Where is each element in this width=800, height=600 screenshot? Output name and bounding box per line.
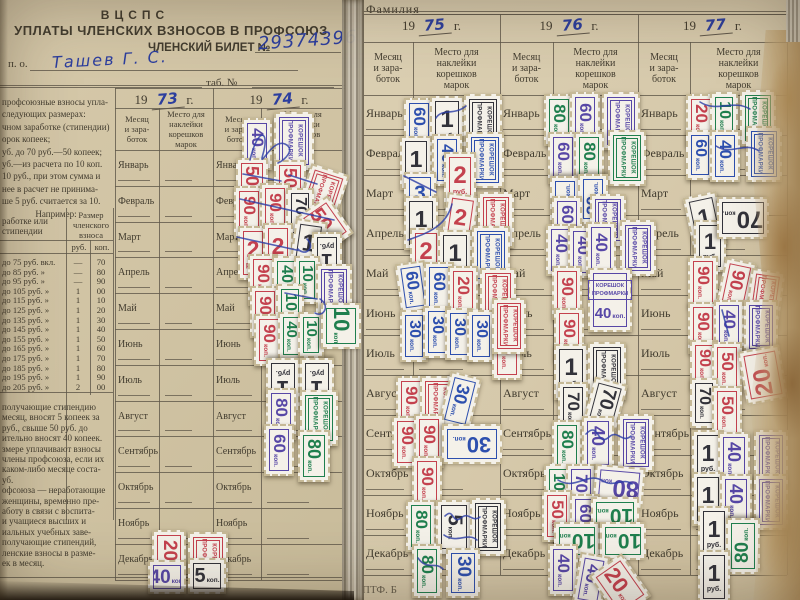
earnings-underline [503, 129, 544, 130]
stub-frame: КОРЕШОК ПРОФМАРКИ [613, 135, 641, 181]
earnings-underline [216, 323, 252, 324]
rate-row-kop: 20 [91, 305, 111, 315]
stamp-amount: 30 [473, 320, 489, 338]
stamp-amount: 80 [581, 142, 598, 161]
stamp-value: 10коп. [304, 320, 319, 351]
rate-row-kop: 40 [91, 324, 111, 334]
month-label: Ноябрь [641, 506, 679, 521]
info-line: уб.—из расчета по 10 коп. [2, 158, 120, 170]
stamp-unit: руб. [310, 370, 324, 377]
stamp-value: 90коп. [421, 425, 438, 458]
rate-row-label: до 165 руб. » [2, 343, 49, 353]
rate-row-kop: 50 [91, 334, 111, 344]
stamp-amount: 10 [330, 308, 352, 331]
stamp-amount: 40 [593, 233, 610, 252]
notes-line: ленские взносы в разме- [2, 548, 95, 558]
stamp-frame: 80коп. [579, 137, 599, 179]
stamp-amount: 30 [451, 382, 473, 406]
rate-row-rub: 1 [68, 324, 88, 334]
stamp-value: 40коп. [721, 310, 738, 343]
rate-row-kop: 80 [91, 363, 111, 373]
stub-text: КОРЕШОК ПРОФМАРКИ [478, 506, 497, 548]
stamp-value: 90коп. [559, 277, 576, 310]
stamp-unit: коп. [455, 578, 462, 591]
place-underline [165, 395, 192, 396]
month-label: Январь [366, 106, 403, 121]
stamp-amount: 10 [716, 101, 732, 119]
membership-card-photo: ВЦСПС УПЛАТЫ ЧЛЕНСКИХ ВЗНОСОВ В ПРОФСОЮЗ… [0, 0, 800, 600]
dues-stamp: 40коп. [582, 416, 614, 470]
stamp-value: 20коп. [455, 276, 472, 309]
month-label: Март [366, 186, 393, 201]
stamp-amount: 50 [719, 396, 736, 415]
month-label: Январь [118, 160, 149, 171]
stamp-unit: коп. [304, 337, 311, 350]
year-suffix: г. [735, 18, 742, 33]
stamp-frame: 30коп. [450, 313, 468, 355]
stamp-frame: 30коп. [451, 553, 475, 593]
stamp-unit: коп. [172, 579, 181, 586]
stub-text: КОРЕШОК ПРОФМАРКИ [475, 139, 494, 181]
stamp-frame: 40коп. [591, 227, 611, 271]
earnings-underline [118, 538, 150, 539]
year-column-line [115, 88, 116, 580]
stamp-unit: коп. [419, 575, 426, 588]
stamp-value: 30коп. [429, 316, 445, 348]
stamp-amount: 70 [595, 386, 619, 411]
rate-row-rub: 1 [68, 295, 88, 305]
rate-row-label: до 85 руб. » [2, 267, 45, 277]
month-label: Октябрь [118, 482, 153, 493]
stamp-value: 1руб. [707, 518, 721, 549]
stamp-amount: 40 [725, 442, 743, 462]
rate-row-label: до 155 руб. » [2, 334, 49, 344]
month-label: Июнь [118, 339, 143, 350]
notes-line: каком-либо месяце соста- [2, 464, 101, 474]
month-label: Февраль [641, 146, 684, 161]
stamp-value: 80коп. [419, 555, 436, 588]
stamp-unit: коп. [271, 454, 278, 467]
month-label: Май [118, 303, 137, 314]
stamp-frame: 30коп. [405, 315, 423, 357]
stamp-frame: 30коп. [428, 311, 446, 353]
stamp-unit: коп. [723, 209, 736, 216]
year-prefix: 19 [540, 18, 553, 33]
earnings-underline [216, 430, 252, 431]
rate-row-kop: 70 [91, 353, 111, 363]
left-edge-shadow [0, 0, 8, 600]
month-label: Июнь [216, 339, 241, 350]
rate-row-label: до 125 руб. » [2, 305, 49, 315]
stamp-amount: 5 [444, 515, 464, 526]
rate-row-rub: 1 [68, 363, 88, 373]
stamp-amount: 20 [693, 104, 710, 123]
rate-row-label: до 135 руб. » [2, 315, 49, 325]
stamp-value: 40коп. [249, 128, 266, 161]
year-prefix: 19 [135, 92, 148, 107]
rate-row-label: до 205 руб. » [2, 382, 49, 392]
month-label: Октябрь [216, 482, 251, 493]
dues-stamp: 60коп. [264, 424, 294, 476]
notes-line: месяц, вносят 5 копеек за [2, 412, 100, 422]
month-label: Февраль [503, 146, 546, 161]
rate-bottom-rule [0, 392, 113, 393]
month-label: Январь [503, 106, 540, 121]
stamp-amount: 1 [440, 108, 453, 132]
month-label: Апрель [118, 267, 150, 278]
rate-row-label: до 115 руб. » [2, 295, 49, 305]
stamp-amount: 30 [429, 316, 445, 334]
stub-text: КОРЕШОК ПРОФМАРКИ [588, 280, 632, 301]
stamp-amount: 40 [595, 306, 612, 321]
stamp-value: 80коп. [581, 142, 598, 175]
stamp-amount: 20 [455, 276, 472, 295]
rate-row-label: до 145 руб. » [2, 324, 49, 334]
stamp-value: 30коп. [453, 433, 491, 455]
stub-text: КОРЕШОК ПРОФМАРКИ [617, 137, 636, 179]
notes-line: получающие стипендий, [2, 537, 96, 547]
stamp-unit: коп. [555, 162, 562, 175]
rate-row-label: до 75 руб. вкл. [2, 257, 55, 267]
stamp-value: 90коп. [267, 193, 284, 226]
stamp-amount: 80 [273, 398, 290, 417]
stamp-amount: 30 [451, 318, 467, 336]
month-col-header: Месяц и зара- боток [638, 42, 690, 95]
stamp-amount: 80 [559, 430, 576, 449]
stamp-frame: 40коп. [719, 305, 739, 347]
notes-line: женщины, временно пре- [2, 496, 99, 506]
stamp-unit: коп. [553, 254, 560, 267]
notes-line: офсоюза — неработающие [2, 485, 105, 495]
stamp-frame: 5коп. [193, 563, 221, 589]
place-underline [267, 538, 309, 539]
place-underline [267, 502, 309, 503]
rate-row-rub: — [68, 257, 88, 267]
place-underline [165, 359, 192, 360]
org-title: ВЦСПС [0, 8, 270, 22]
stamp-value: 60коп. [411, 107, 428, 140]
earnings-underline [118, 359, 150, 360]
month-label: Февраль [118, 196, 154, 207]
stamp-amount: 90 [695, 312, 712, 331]
stamp-unit: коп. [399, 446, 406, 459]
month-label: Октябрь [366, 466, 409, 481]
stamp-value: 40коп. [717, 140, 734, 173]
table-top [115, 88, 345, 89]
stamp-unit: коп. [431, 335, 438, 348]
stamp-amount: 60 [559, 205, 576, 224]
info-line: чном заработке (стипендии) [2, 121, 120, 133]
month-label: Март [641, 186, 668, 201]
stub-text: КОРЕШОК ПРОФМАРКИ [628, 227, 647, 269]
stamp-value: 5коп. [195, 566, 220, 586]
month-col-header: Месяц и зара- боток [363, 42, 413, 95]
notes-line: ительно вносят 40 копеек. [2, 433, 102, 443]
month-label: Март [118, 232, 141, 243]
rate-row-rub: 1 [68, 315, 88, 325]
stamp-amount: 1 [704, 231, 716, 253]
stamp-unit: коп. [453, 337, 460, 350]
info-line: профсоюзные взносы упла- [2, 96, 120, 108]
stamp-unit: коп. [207, 578, 220, 585]
stamp-value: 40коп. [593, 233, 610, 266]
rate-row-kop: 30 [91, 315, 111, 325]
stamp-value: 80коп. [413, 510, 430, 543]
dues-stamp: КОРЕШОК ПРОФМАРКИ [492, 298, 526, 354]
stamp-unit: коп. [581, 162, 588, 175]
earnings-underline [366, 529, 404, 530]
stamp-frame: 5коп. [441, 505, 467, 549]
stamp-unit: коп. [306, 460, 313, 473]
rate-row-label: до 195 руб. » [2, 372, 49, 382]
rate-row-kop: 60 [91, 343, 111, 353]
stamp-amount: 70 [565, 392, 582, 411]
rate-row-kop: 80 [91, 267, 111, 277]
stamp-frame: 60коп. [429, 267, 449, 309]
stamp-frame: 60коп. [553, 137, 573, 179]
stamp-frame: 30коп. [447, 429, 497, 459]
month-label: Октябрь [503, 466, 546, 481]
info-line: следующих размерах: [2, 108, 120, 120]
earnings-underline [503, 169, 544, 170]
stamp-amount: 50 [719, 352, 736, 371]
rate-right-edge [113, 208, 114, 520]
stamp-amount: 40 [284, 321, 299, 338]
stub-frame: КОРЕШОК ПРОФМАРКИ [497, 303, 521, 349]
month-label: Август [641, 386, 677, 401]
earnings-underline [641, 209, 681, 210]
footer-note: ПТФ. Б [362, 584, 397, 596]
stamp-amount: 60 [431, 272, 448, 291]
notes-line: иальных учебных заве- [2, 527, 91, 537]
year-header: 1977г. [638, 16, 787, 35]
stamp-frame: КОРЕШОК ПРОФМАРКИ40коп. [593, 273, 627, 327]
stamp-amount: 80 [305, 439, 323, 459]
rate-row-kop: 70 [91, 257, 111, 267]
stamp-amount: 1 [708, 518, 721, 541]
earnings-underline [366, 369, 404, 370]
month-label: Август [216, 411, 246, 422]
stamp-unit: коп. [616, 593, 629, 600]
stamp-value: 1руб. [707, 562, 721, 593]
stamp-unit: коп. [408, 339, 415, 352]
stamp-value: 30коп. [447, 382, 473, 419]
stamp-amount: 90 [695, 266, 712, 285]
page-edge-top-right [786, 0, 800, 42]
stub-text: КОРЕШОК ПРОФМАРКИ [499, 305, 518, 347]
stamp-frame: 80коп. [411, 505, 431, 547]
stamp-amount: 5 [195, 566, 206, 586]
dues-stamp: 80коп. [726, 518, 760, 574]
stamp-amount: 1 [564, 356, 577, 380]
year-header: 1974г. [213, 90, 345, 109]
rate-row-rub: 2 [68, 382, 88, 392]
stamp-unit: коп. [744, 528, 751, 541]
stamp-frame: 90коп. [693, 261, 713, 303]
earnings-underline [641, 409, 681, 410]
stamp-amount: 80 [419, 555, 436, 574]
month-row-rule [115, 544, 345, 545]
stamp-frame: 1руб. [703, 511, 725, 555]
stamp-amount: 10 [550, 473, 566, 491]
po-label: п. о. [8, 58, 28, 70]
subcolumn-line [159, 108, 160, 580]
stamp-unit: коп. [599, 476, 612, 484]
stamp-unit: коп. [698, 406, 705, 419]
stamp-unit: коп. [593, 253, 600, 266]
year-suffix: г. [591, 18, 598, 33]
stamp-frame: 70коп. [695, 383, 713, 423]
stamp-value: 30коп. [473, 320, 489, 352]
stamp-amount: 30 [454, 555, 473, 576]
year-prefix: 19 [683, 18, 696, 33]
info-line: ше 5 руб. считается за 10. [2, 195, 120, 207]
place-underline [165, 216, 192, 217]
stamp-value: 90коп. [241, 196, 258, 229]
stamp-frame: 90коп. [259, 319, 279, 361]
dues-stamp: 30коп. [446, 548, 480, 598]
stamp-frame: 80коп. [417, 549, 437, 593]
stamp-frame: 30коп. [472, 315, 490, 357]
stamp-unit: руб. [707, 586, 721, 593]
month-label: Май [366, 266, 388, 281]
rate-row-label: до 105 руб. » [2, 286, 49, 296]
notes-line: и учащиеся высших и [2, 516, 86, 526]
stamp-frame: 40коп. [553, 549, 573, 591]
place-underline [165, 323, 192, 324]
earnings-underline [503, 449, 544, 450]
month-label: Июль [216, 375, 240, 386]
notes-line: аботу в связи с воспита- [2, 506, 95, 516]
stamp-frame: 50коп. [717, 391, 737, 433]
month-label: Апрель [366, 226, 404, 241]
info-line: уб. до 70 руб.—50 копеек; [2, 146, 120, 158]
stamp-value: 50коп. [719, 396, 736, 429]
stamp-amount: 90 [696, 349, 712, 367]
stamp-amount: 60 [271, 434, 288, 453]
earnings-underline [118, 216, 150, 217]
month-label: Декабрь [641, 546, 683, 561]
earnings-underline [216, 502, 252, 503]
stamp-value: 40коп. [284, 321, 299, 352]
earnings-underline [118, 287, 150, 288]
stamp-amount: 1 [702, 442, 715, 465]
stamp-value: 60коп. [402, 270, 423, 305]
dues-stamp: КОРЕШОК ПРОФМАРКИ [608, 130, 646, 186]
month-label: Ноябрь [366, 506, 404, 521]
stamp-amount: 90 [561, 319, 578, 338]
earnings-underline [641, 529, 681, 530]
place-underline [419, 369, 463, 370]
stamp-unit: коп. [559, 450, 566, 463]
notes-line: получающие стипендию [2, 402, 96, 412]
stamp-value: 10коп. [605, 531, 641, 552]
stamp-frame: 1руб. [703, 555, 725, 599]
rate-row-rub: 1 [68, 353, 88, 363]
stamp-amount: 60 [402, 270, 421, 291]
place-underline [267, 574, 309, 575]
stamp-value: 90коп. [419, 467, 436, 500]
year-suffix: г. [454, 18, 461, 33]
stamp-unit: коп. [406, 291, 414, 305]
year-header: 1976г. [500, 16, 638, 35]
stamp-amount: 40 [589, 426, 607, 446]
place-underline [165, 180, 192, 181]
info-line: 10 руб., при этом сумма и [2, 170, 120, 182]
rate-row-label: до 175 руб. » [2, 353, 49, 363]
stamp-unit: коп. [580, 582, 589, 596]
month-row-rule [115, 508, 345, 509]
rate-row-label: до 95 руб. » [2, 276, 45, 286]
earnings-underline [216, 395, 252, 396]
stamp-unit: руб. [707, 542, 721, 549]
year-suffix: г. [186, 92, 193, 107]
stamp-amount: 90 [267, 193, 284, 212]
stamp-value: 80коп. [305, 439, 323, 473]
earnings-underline [503, 489, 544, 490]
stamp-frame: 10коп. [326, 308, 356, 344]
earnings-underline [503, 529, 544, 530]
earnings-underline [503, 569, 544, 570]
stamp-unit: коп. [596, 507, 609, 514]
stamp-value: 80коп. [559, 430, 576, 463]
stamp-unit: коп. [453, 435, 466, 442]
rate-rub-header: руб. [68, 242, 90, 252]
stamp-amount: 10 [304, 320, 319, 337]
earnings-underline [641, 289, 681, 290]
rate-row-rub: — [68, 267, 88, 277]
stamp-unit: коп. [475, 339, 482, 352]
year-digits-handwritten: 75 [417, 15, 451, 37]
earnings-underline [118, 395, 150, 396]
place-col-header: Место для наклейки корешков марок [413, 42, 500, 95]
earnings-underline [366, 489, 404, 490]
month-label: Январь [641, 106, 678, 121]
month-col-header: Месяц и зара- боток [115, 108, 159, 150]
stamp-frame: 80коп. [731, 523, 755, 569]
month-label: Июнь [641, 306, 671, 321]
place-underline [165, 466, 192, 467]
earnings-underline [366, 249, 404, 250]
rate-kop-header: коп. [91, 242, 113, 252]
stamp-amount: 2 [453, 205, 469, 230]
stamp-frame: 20коп. [453, 271, 473, 313]
stamp-amount: 90 [559, 277, 576, 296]
stamp-amount: 20 [600, 564, 632, 597]
stamp-unit: руб. [276, 370, 290, 377]
place-underline [165, 502, 192, 503]
month-label: Август [503, 386, 539, 401]
stamp-amount: 30 [467, 433, 491, 455]
stamp-amount: 70 [573, 474, 590, 493]
year-prefix: 19 [402, 18, 415, 33]
stamp-amount: 40 [278, 265, 294, 283]
stamp-amount: 80 [413, 510, 430, 529]
year-digits-handwritten: 76 [555, 15, 589, 37]
stamp-unit: коп. [332, 332, 339, 344]
stamp-amount: 50 [549, 500, 566, 519]
rate-row-kop: 90 [91, 372, 111, 382]
month-label: Декабрь [503, 546, 545, 561]
rate-row-rub: 1 [68, 343, 88, 353]
stamp-unit: коп. [717, 160, 724, 173]
earnings-underline [366, 209, 404, 210]
stamp-unit: коп. [419, 487, 426, 500]
stamp-amount: 90 [421, 425, 438, 444]
notes-line: руб., свыше 50 руб. до [2, 423, 88, 433]
stamp-amount: 90 [727, 269, 749, 292]
earnings-underline [216, 287, 252, 288]
